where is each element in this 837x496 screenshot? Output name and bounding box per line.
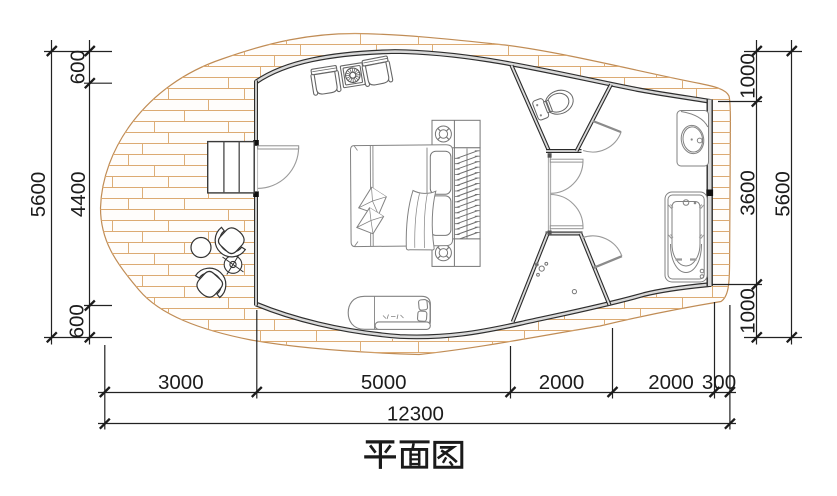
svg-text:12300: 12300 bbox=[387, 403, 444, 426]
svg-text:3600: 3600 bbox=[737, 170, 760, 216]
svg-text:600: 600 bbox=[67, 50, 90, 84]
svg-text:600: 600 bbox=[65, 304, 88, 338]
svg-text:300: 300 bbox=[702, 371, 736, 394]
svg-text:2000: 2000 bbox=[539, 371, 585, 394]
svg-text:1000: 1000 bbox=[737, 53, 760, 99]
svg-text:3000: 3000 bbox=[158, 371, 204, 394]
svg-text:5600: 5600 bbox=[772, 171, 795, 217]
svg-text:1000: 1000 bbox=[737, 288, 760, 334]
svg-text:5600: 5600 bbox=[27, 172, 50, 218]
svg-text:5000: 5000 bbox=[361, 371, 407, 394]
svg-text:4400: 4400 bbox=[67, 171, 90, 217]
svg-text:2000: 2000 bbox=[648, 371, 694, 394]
